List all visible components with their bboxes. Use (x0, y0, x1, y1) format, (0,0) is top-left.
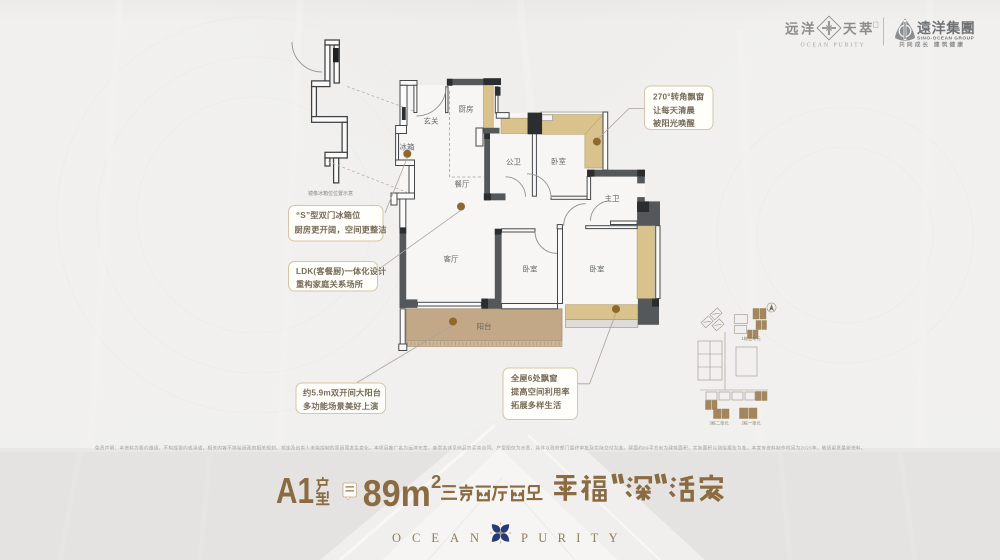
svg-text:OCEAN: OCEAN (392, 531, 490, 545)
svg-text:SINO-OCEAN GROUP: SINO-OCEAN GROUP (917, 36, 974, 41)
svg-text:遠洋集團: 遠洋集團 (917, 20, 975, 36)
svg-text:主卫: 主卫 (605, 193, 620, 203)
svg-text:厨房: 厨房 (459, 104, 474, 114)
svg-text:270°转角飘窗: 270°转角飘窗 (653, 92, 704, 102)
svg-text:公卫: 公卫 (506, 158, 521, 167)
svg-text:2: 2 (431, 471, 441, 492)
svg-text:被阳光唤醒: 被阳光唤醒 (652, 118, 696, 128)
svg-text:镜像冰箱位位置示意: 镜像冰箱位位置示意 (308, 190, 353, 197)
svg-text:天萃: 天萃 (843, 21, 875, 37)
svg-text:PURITY: PURITY (521, 531, 628, 545)
svg-text:89m: 89m (363, 472, 431, 514)
svg-text:拓展多样生活: 拓展多样生活 (511, 400, 561, 410)
svg-text:“S”型双门冰箱位: “S”型双门冰箱位 (296, 210, 361, 220)
svg-text:让每天清晨: 让每天清晨 (653, 105, 696, 115)
svg-text:2栋一单元: 2栋一单元 (741, 420, 760, 427)
svg-text:A1: A1 (276, 470, 314, 511)
svg-text:共同成长 建筑健康: 共同成长 建筑健康 (899, 41, 965, 49)
svg-text:冰箱: 冰箱 (400, 142, 415, 152)
svg-text:厨房更开阔，空间更整洁: 厨房更开阔，空间更整洁 (295, 225, 387, 235)
svg-text:LDK(客餐厨)一体化设计: LDK(客餐厨)一体化设计 (296, 266, 387, 276)
svg-text:客厅: 客厅 (444, 254, 459, 264)
svg-text:OCEAN PURITY: OCEAN PURITY (801, 43, 866, 49)
svg-text:3栋二单元: 3栋二单元 (709, 420, 728, 427)
svg-text:卧室: 卧室 (523, 264, 538, 274)
svg-text:远洋: 远洋 (785, 21, 817, 37)
svg-text:卧室: 卧室 (590, 264, 605, 274)
svg-text:阳台: 阳台 (477, 321, 492, 331)
svg-text:重构家庭关系场所: 重构家庭关系场所 (296, 279, 364, 289)
svg-text:餐厅: 餐厅 (455, 180, 470, 189)
svg-text:1栋五单元: 1栋五单元 (741, 335, 760, 342)
svg-text:全屋6处飘窗: 全屋6处飘窗 (510, 373, 558, 383)
svg-text:卧室: 卧室 (551, 156, 566, 166)
svg-text:免责声明：本资料为要约邀请，不构成要约或承诺，相关内容不排除: 免责声明：本资料为要约邀请，不构成要约或承诺，相关内容不排除因政府相关规划、规定… (95, 445, 866, 452)
svg-text:提高空间利用率: 提高空间利用率 (511, 387, 570, 397)
svg-text:约5.9m双开间大阳台: 约5.9m双开间大阳台 (303, 388, 381, 398)
svg-text:玄关: 玄关 (424, 116, 439, 126)
svg-text:多功能场景美好上演: 多功能场景美好上演 (303, 401, 379, 411)
